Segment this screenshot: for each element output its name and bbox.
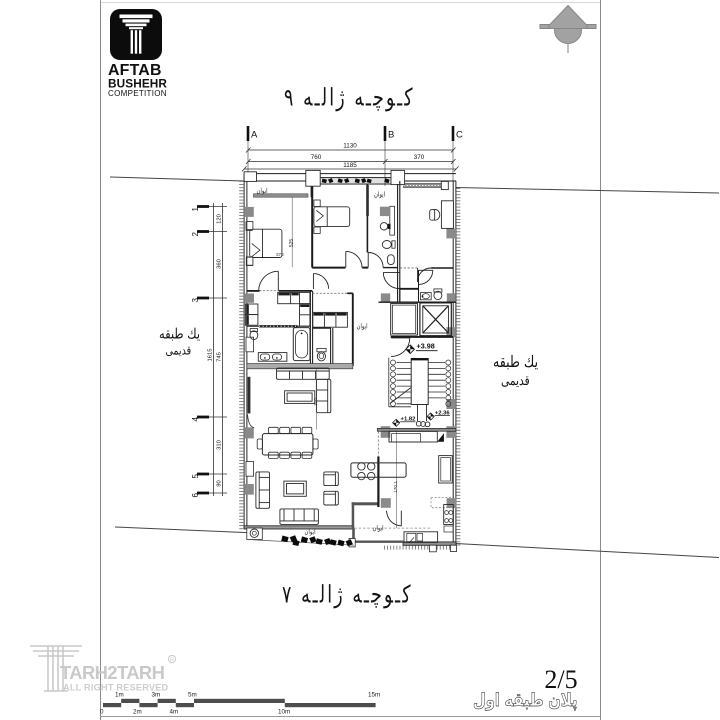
svg-text:A: A <box>251 130 258 141</box>
svg-text:10m: 10m <box>278 709 290 716</box>
svg-text:90: 90 <box>217 480 223 486</box>
svg-text:310: 310 <box>313 398 318 406</box>
svg-text:+3.98: +3.98 <box>417 342 435 351</box>
svg-text:378: 378 <box>276 252 284 257</box>
svg-text:1130: 1130 <box>343 143 357 150</box>
svg-text:COMPETITION: COMPETITION <box>108 89 167 98</box>
svg-text:C: C <box>456 130 463 141</box>
svg-text:R: R <box>170 657 174 663</box>
svg-text:15m: 15m <box>368 692 380 699</box>
svg-text:2/5: 2/5 <box>544 665 577 694</box>
svg-text:760: 760 <box>311 154 322 161</box>
svg-text:1m: 1m <box>115 692 124 699</box>
svg-text:1615: 1615 <box>208 349 214 362</box>
svg-text:4: 4 <box>191 416 200 421</box>
svg-text:B: B <box>388 130 394 141</box>
svg-text:1: 1 <box>191 206 200 211</box>
svg-text:TARH2TARH: TARH2TARH <box>60 662 165 683</box>
svg-text:525: 525 <box>289 239 295 248</box>
svg-text:120: 120 <box>217 214 223 224</box>
svg-text:745: 745 <box>217 352 223 362</box>
svg-text:310: 310 <box>217 440 223 450</box>
svg-text:2m: 2m <box>133 709 142 716</box>
svg-text:0: 0 <box>100 709 104 716</box>
svg-text:370: 370 <box>414 154 425 161</box>
svg-text:2: 2 <box>191 231 200 236</box>
svg-text:5m: 5m <box>188 692 197 699</box>
svg-text:6: 6 <box>191 492 200 497</box>
svg-text:3m: 3m <box>152 692 161 699</box>
svg-text:170.1: 170.1 <box>393 481 398 493</box>
svg-text:3: 3 <box>191 297 200 302</box>
svg-text:5: 5 <box>191 473 200 478</box>
svg-text:4m: 4m <box>170 709 179 716</box>
svg-text:1185: 1185 <box>343 162 357 169</box>
svg-text:360: 360 <box>217 259 223 269</box>
